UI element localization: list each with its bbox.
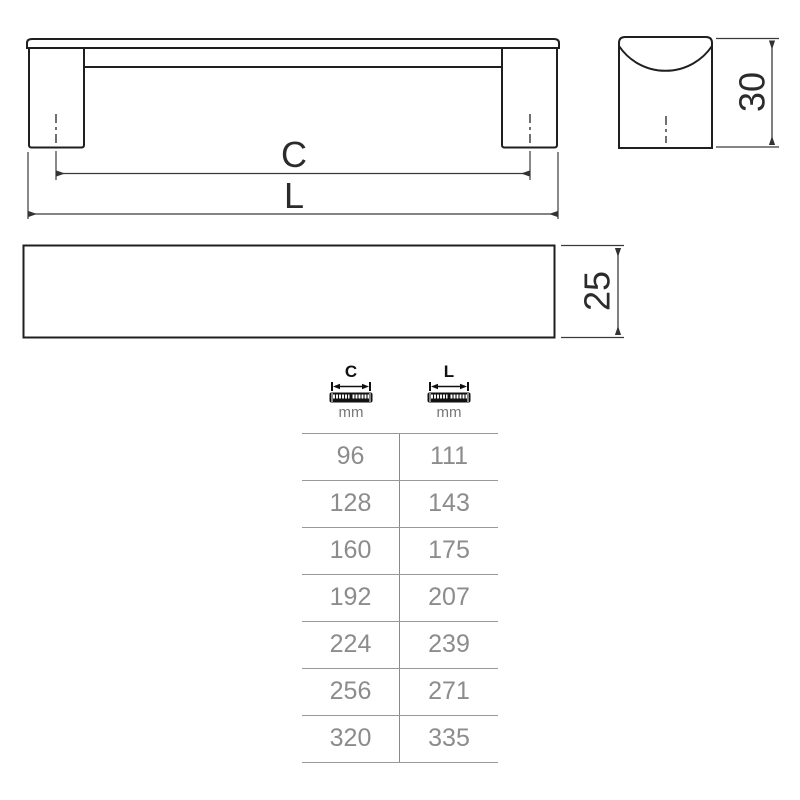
dimension-label-l: L bbox=[284, 175, 304, 216]
cell-c: 320 bbox=[302, 716, 400, 762]
table-row: 96 111 bbox=[302, 434, 498, 481]
table-row: 128 143 bbox=[302, 481, 498, 528]
table-body: 96 111 128 143 160 175 192 207 224 239 2… bbox=[302, 433, 498, 763]
handle-bar-front bbox=[27, 39, 559, 48]
front-view: C L bbox=[27, 39, 559, 219]
cell-c: 128 bbox=[302, 481, 400, 527]
cell-l: 111 bbox=[400, 434, 498, 480]
dimension-label-c: C bbox=[281, 134, 307, 175]
table-row: 224 239 bbox=[302, 622, 498, 669]
column-unit-c: mm bbox=[339, 405, 364, 421]
cell-c: 224 bbox=[302, 622, 400, 668]
dimension-label-25: 25 bbox=[577, 271, 618, 311]
cell-c: 192 bbox=[302, 575, 400, 621]
right-foot bbox=[502, 48, 557, 148]
cell-l: 143 bbox=[400, 481, 498, 527]
table-row: 320 335 bbox=[302, 716, 498, 763]
cell-c: 256 bbox=[302, 669, 400, 715]
side-view: 30 bbox=[619, 37, 779, 148]
table-row: 192 207 bbox=[302, 575, 498, 622]
cell-l: 335 bbox=[400, 716, 498, 762]
width-arrow-icon bbox=[430, 382, 468, 391]
ruler-icon bbox=[330, 393, 373, 403]
cell-c: 96 bbox=[302, 434, 400, 480]
cell-c: 160 bbox=[302, 528, 400, 574]
column-letter-c: C bbox=[345, 363, 357, 381]
table-row: 160 175 bbox=[302, 528, 498, 575]
plan-body bbox=[24, 246, 555, 338]
column-unit-l: mm bbox=[437, 405, 462, 421]
plan-view: 25 bbox=[24, 246, 625, 338]
ruler-icon bbox=[428, 393, 471, 403]
column-letter-l: L bbox=[444, 363, 454, 381]
dimension-label-30: 30 bbox=[732, 72, 773, 112]
measure-ruler-icon bbox=[426, 381, 472, 405]
width-arrow-icon bbox=[332, 382, 370, 391]
measure-ruler-icon bbox=[328, 381, 374, 405]
cell-l: 239 bbox=[400, 622, 498, 668]
table-row: 256 271 bbox=[302, 669, 498, 716]
left-foot bbox=[29, 48, 84, 148]
handle-spec-sheet: C L 30 25 C bbox=[0, 0, 800, 800]
dimension-table: C bbox=[302, 363, 498, 763]
column-header-c: C bbox=[302, 363, 400, 421]
table-header: C bbox=[302, 363, 498, 421]
cell-l: 175 bbox=[400, 528, 498, 574]
column-header-l: L bbox=[400, 363, 498, 421]
cell-l: 207 bbox=[400, 575, 498, 621]
cell-l: 271 bbox=[400, 669, 498, 715]
